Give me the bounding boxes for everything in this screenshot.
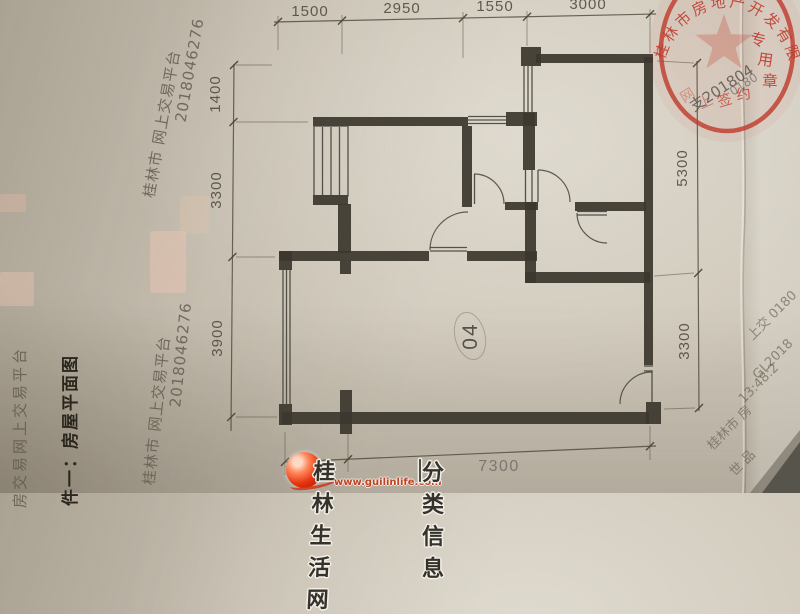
- floor-plan-svg: 1500 2950 1550 3000 1400 3300 3900 5300 …: [0, 0, 800, 493]
- walls: [279, 47, 661, 434]
- section-name: 分类信息: [422, 455, 446, 583]
- top-window: [468, 117, 506, 124]
- window-symbols: [283, 66, 532, 404]
- dim-left-3: 3900: [209, 319, 226, 356]
- seal-char: 章: [762, 72, 778, 91]
- upper-right-window: [524, 66, 532, 113]
- dim-top-3: 1550: [476, 0, 513, 15]
- seal-char: 用: [756, 50, 774, 70]
- entry-door-arc: [620, 372, 652, 404]
- dim-left-2: 3300: [208, 171, 225, 208]
- left-edge-watermark: 房交易网上交易平台: [9, 346, 30, 508]
- door-arc: [474, 174, 504, 204]
- dim-bottom-2: 7300: [478, 458, 520, 475]
- dim-top-1: 1500: [291, 3, 328, 20]
- unit-number: 04: [459, 322, 482, 349]
- door-arc: [577, 213, 607, 243]
- attachment-title: 件一：房屋平面图: [56, 354, 81, 506]
- left-window: [283, 270, 290, 404]
- door-arc: [430, 212, 468, 250]
- dim-left-1: 1400: [207, 75, 224, 112]
- dim-right-1: 5300: [674, 149, 691, 186]
- door-arc: [538, 170, 570, 202]
- dim-right-2: 3300: [676, 322, 693, 359]
- dim-top-4: 3000: [569, 0, 606, 13]
- dim-top-2: 2950: [383, 0, 420, 17]
